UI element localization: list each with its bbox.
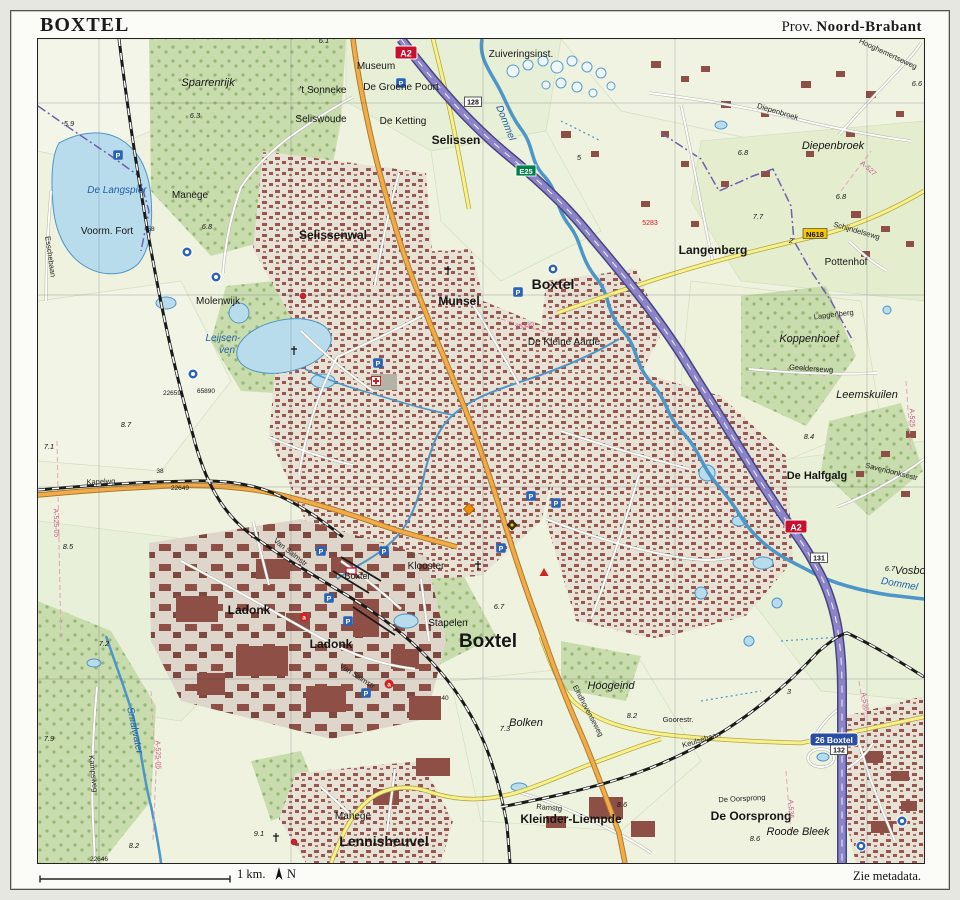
exit-sign-icon: 26 Boxtel — [810, 733, 858, 746]
poi-circle-icon — [548, 264, 558, 274]
map-label: De Oorsprong — [711, 809, 792, 823]
svg-text:P: P — [116, 153, 121, 160]
map-label: 6.7 — [885, 564, 896, 573]
map-label: 8.4 — [804, 432, 814, 441]
svg-text:A2: A2 — [790, 523, 802, 533]
map-label: Goorestr. — [663, 715, 694, 724]
map-label: De Kleine Aarde — [528, 337, 601, 348]
map-label: 40 — [441, 695, 449, 702]
map-label: Manege — [335, 811, 372, 822]
map-label: Pottenhof — [825, 257, 868, 268]
svg-text:P: P — [516, 290, 521, 297]
parking-icon: P — [373, 358, 383, 368]
km-box-icon: 128 — [465, 97, 482, 107]
province-prefix: Prov. — [781, 19, 812, 35]
map-label: 22646 — [90, 856, 108, 863]
km-box-icon: 131 — [811, 553, 828, 563]
svg-text:128: 128 — [467, 100, 479, 107]
map-label: 't Sonneke — [300, 85, 347, 96]
map-label: 58 — [147, 226, 155, 233]
map-label: Stapelen — [428, 618, 467, 629]
map-label: Lennisheuvel — [339, 833, 428, 849]
map-label: A-525-05 — [51, 508, 59, 537]
map-label: De Groene Poort — [363, 82, 439, 93]
map-label: De Ketting — [380, 116, 427, 127]
province-caption: Prov. Noord-Brabant — [781, 19, 922, 36]
map-label: Boxtel — [459, 631, 517, 652]
map-label: A-536 — [787, 799, 795, 818]
map-label: Langenberg — [679, 243, 748, 257]
map-label: 7.1 — [44, 442, 54, 451]
map-label: 6.8 — [738, 148, 749, 157]
svg-text:P: P — [364, 691, 369, 698]
map-label: 9.1 — [254, 829, 264, 838]
map-label: Roode Bleek — [767, 826, 830, 838]
hospital-icon — [372, 377, 381, 386]
map-label: Manege — [172, 190, 209, 201]
map-label: 38 — [156, 468, 164, 475]
map-label: 7.7 — [753, 212, 764, 221]
parking-icon: P — [343, 616, 353, 626]
map-label: Leemskuilen — [836, 389, 898, 401]
svg-text:132: 132 — [833, 748, 845, 755]
km-box-icon: 132 — [831, 745, 848, 755]
dot-red-icon — [300, 293, 306, 299]
map-label: 8.2 — [627, 711, 638, 720]
map-label: 6.6 — [912, 79, 923, 88]
map-label: 7.9 — [44, 734, 55, 743]
map-label: De Halfgalg — [787, 470, 848, 482]
map-label: 8.6 — [617, 800, 628, 809]
parking-icon: P — [316, 546, 326, 556]
map-label: Kapelwg — [86, 477, 115, 487]
parking-icon: P — [513, 287, 523, 297]
map-label: De Langspier — [87, 185, 147, 196]
svg-text:a: a — [302, 614, 306, 621]
map-label: 7.3 — [500, 724, 511, 733]
map-label: Ladonk — [310, 637, 353, 651]
map-label: Museum — [357, 61, 395, 72]
svg-text:P: P — [327, 596, 332, 603]
svg-text:26 Boxtel: 26 Boxtel — [815, 735, 853, 745]
svg-text:a: a — [387, 681, 391, 688]
dot-red-icon — [291, 839, 297, 845]
page-title: BOXTEL — [40, 14, 129, 37]
north-arrow-icon — [273, 866, 285, 882]
svg-text:P: P — [376, 361, 381, 368]
map-label: Voorm. Fort — [81, 226, 133, 237]
map-label: Leijsen- — [205, 333, 241, 344]
nroad-shield-icon: N618 — [803, 229, 827, 239]
map-label: Boxtel — [532, 276, 575, 292]
poi-circle-icon — [897, 816, 907, 826]
parking-icon: P — [113, 150, 123, 160]
metadata-note: Zie metadata. — [853, 869, 921, 884]
map-label: 8.6 — [750, 834, 761, 843]
map-label: Molenwijk — [196, 296, 241, 307]
map-label: 6.8 — [202, 222, 213, 231]
map-label: 6.7 — [494, 602, 505, 611]
province-name: Noord-Brabant — [816, 19, 922, 35]
motorway-shield-icon: A2 — [395, 46, 417, 59]
map-label: Munsel — [438, 294, 479, 308]
svg-text:P: P — [382, 549, 387, 556]
svg-text:P: P — [529, 494, 534, 501]
map-label: 5.9 — [64, 119, 75, 128]
north-label: N — [287, 867, 296, 882]
map-label: Ladonk — [228, 603, 271, 617]
topographic-map: A2A2E25N61826 Boxtel128131132PPPPPPPPPPP… — [37, 38, 925, 864]
map-label: Klooster — [408, 561, 445, 572]
motorway-shield-icon: A2 — [785, 520, 807, 533]
parking-icon: P — [526, 491, 536, 501]
map-label: 7.2 — [99, 639, 110, 648]
map-label: Boxtel — [344, 571, 369, 581]
svg-text:P: P — [346, 619, 351, 626]
map-label: A-525 — [908, 408, 916, 427]
parking-icon: P — [324, 593, 334, 603]
map-label: 22659 — [163, 390, 181, 397]
map-label: 65890 — [197, 388, 215, 395]
poi-circle-icon — [211, 272, 221, 282]
svg-text:131: 131 — [813, 556, 825, 563]
map-label: 5283 — [642, 220, 658, 227]
map-label: 8.5 — [63, 542, 74, 551]
svg-text:P: P — [319, 549, 324, 556]
map-label: ven — [219, 345, 236, 356]
svg-text:A2: A2 — [400, 49, 412, 59]
svg-text:P: P — [554, 501, 559, 508]
parking-icon: P — [551, 498, 561, 508]
parking-icon: P — [361, 688, 371, 698]
map-label: 22649 — [171, 485, 189, 492]
map-label: Diepenbroek — [802, 140, 865, 152]
map-label: Seliswoude — [295, 114, 347, 125]
map-label: Selissen — [432, 133, 481, 147]
map-sheet: BOXTEL Prov. Noord-Brabant — [10, 10, 950, 890]
map-label: 8.2 — [129, 841, 140, 850]
map-label: Bolken — [509, 717, 543, 729]
map-label: Hoogeind — [587, 680, 635, 692]
svg-text:P: P — [499, 546, 504, 553]
scale-label: 1 km. — [237, 867, 265, 882]
map-label: Vosbos — [895, 565, 924, 577]
poi-circle-icon — [856, 841, 866, 851]
map-label: Sparrenrijk — [181, 77, 235, 89]
map-label: 2 — [788, 236, 794, 245]
svg-text:E25: E25 — [519, 167, 532, 176]
map-label: Zuiveringsinst. — [489, 49, 553, 60]
map-label: 6.1 — [319, 39, 329, 45]
map-label: 8.7 — [121, 420, 132, 429]
map-caption: 1 km. N Zie metadata. — [11, 867, 949, 887]
map-label: Selissenwal — [299, 228, 367, 242]
poi-a-icon: a — [300, 613, 309, 622]
map-label: Koppenhoef — [779, 333, 839, 345]
map-label: A-525-05 — [153, 740, 161, 769]
map-label: 6.3 — [190, 111, 201, 120]
parking-icon: P — [496, 543, 506, 553]
svg-text:N618: N618 — [806, 230, 824, 239]
map-label: Kleinder-Liempde — [520, 812, 622, 826]
poi-a-icon: a — [385, 680, 394, 689]
poi-circle-icon — [188, 369, 198, 379]
map-label: 6.8 — [836, 192, 847, 201]
eroad-shield-icon: E25 — [516, 165, 536, 176]
parking-icon: P — [379, 546, 389, 556]
poi-circle-icon — [182, 247, 192, 257]
scale-bar — [38, 873, 234, 885]
